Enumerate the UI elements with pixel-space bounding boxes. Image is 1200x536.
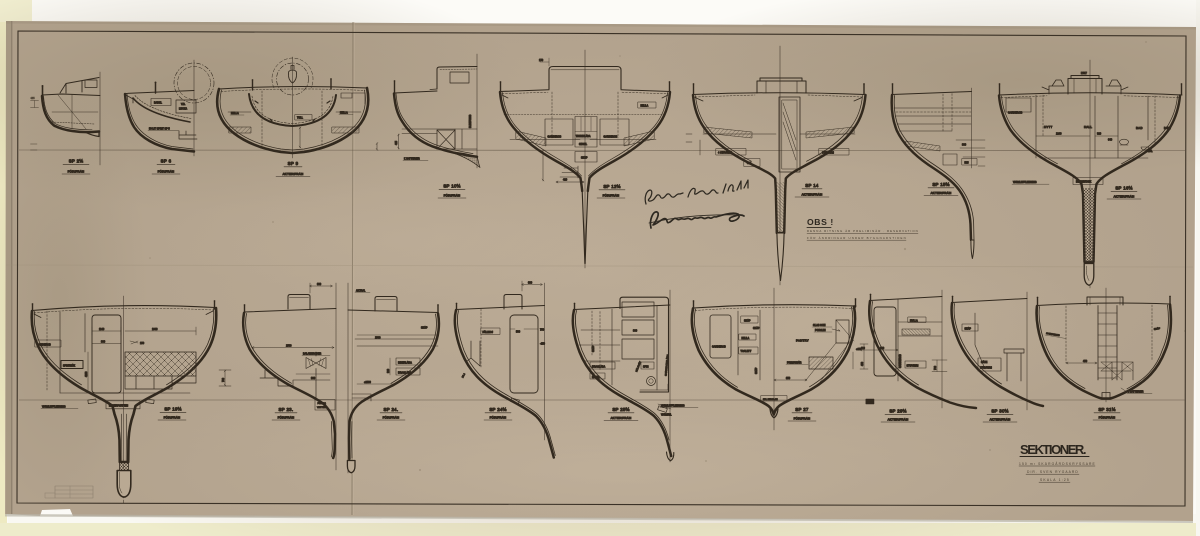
svg-text:1640: 1640 (152, 329, 158, 331)
svg-text:HELLA: HELLA (641, 105, 649, 108)
svg-text:310: 310 (1097, 134, 1102, 136)
svg-text:500: 500 (516, 332, 521, 334)
svg-text:SP 19½: SP 19½ (164, 407, 181, 412)
svg-text:SP 12½: SP 12½ (603, 184, 620, 189)
svg-text:STUVRUM: STUVRUM (980, 368, 992, 370)
svg-text:HALL: HALL (1084, 125, 1092, 129)
svg-text:1240: 1240 (1056, 134, 1062, 136)
svg-text:VARMLUFTLEDNING: VARMLUFTLEDNING (42, 406, 66, 409)
svg-text:SP 2½: SP 2½ (69, 159, 84, 164)
svg-text:890: 890 (880, 348, 885, 350)
svg-text:1500: 1500 (286, 345, 292, 347)
svg-text:SP 10½: SP 10½ (443, 184, 460, 189)
svg-text:BENSINTANK: BENSINTANK (1076, 181, 1092, 184)
svg-text:SP 9: SP 9 (288, 161, 299, 166)
svg-text:HELLA: HELLA (340, 112, 348, 115)
svg-text:HELLA: HELLA (231, 112, 239, 115)
svg-text:640: 640 (1108, 140, 1113, 142)
svg-text:FÖRIFRÅN: FÖRIFRÅN (490, 415, 507, 420)
svg-text:FÖRIFRÅN: FÖRIFRÅN (158, 169, 175, 174)
svg-text:SKÅP: SKÅP (592, 345, 595, 352)
svg-text:VARMRIL: VARMRIL (661, 414, 672, 417)
svg-text:410: 410 (563, 180, 568, 182)
svg-text:150: 150 (140, 343, 145, 345)
svg-text:OBS !: OBS ! (807, 217, 834, 227)
svg-text:AKTERIFRÅN: AKTERIFRÅN (990, 417, 1011, 422)
svg-text:FÖRRV.: FÖRRV. (318, 402, 327, 405)
svg-text:STUVRUM: STUVRUM (907, 365, 919, 367)
svg-text:SKÅP: SKÅP (744, 319, 751, 322)
svg-text:K BATTERIER: K BATTERIER (404, 158, 420, 161)
svg-text:BAL: BAL (1148, 150, 1153, 153)
svg-text:900: 900 (962, 145, 967, 147)
svg-text:STUVRUM: STUVRUM (822, 153, 834, 155)
svg-text:2 BATTERIER: 2 BATTERIER (1128, 391, 1144, 394)
svg-text:SP 29½: SP 29½ (889, 409, 906, 414)
svg-text:SP 14: SP 14 (805, 183, 819, 188)
svg-text:1140: 1140 (99, 329, 105, 331)
svg-text:SP 27: SP 27 (795, 407, 809, 412)
svg-text:SP 16½: SP 16½ (1115, 186, 1132, 191)
svg-text:FÖR ÄNDRINGAR UNDER BYGGNADSTI: FÖR ÄNDRINGAR UNDER BYGGNADSTIDEN (807, 236, 906, 240)
svg-text:FÖRIFRÅN: FÖRIFRÅN (444, 193, 461, 198)
svg-text:DRAGLÅDA: DRAGLÅDA (592, 365, 606, 368)
svg-text:450: 450 (862, 361, 864, 366)
svg-text:PORSLIN: PORSLIN (815, 330, 826, 332)
svg-text:VATTEN: VATTEN (317, 406, 326, 409)
svg-text:445: 445 (747, 163, 752, 165)
svg-text:FÖRIFRÅN: FÖRIFRÅN (164, 415, 181, 420)
svg-text:50 LIT SPRIT SP 5: 50 LIT SPRIT SP 5 (149, 129, 170, 131)
svg-text:FÄLLKOJ: FÄLLKOJ (483, 331, 494, 334)
svg-text:FÖRIFRÅN: FÖRIFRÅN (1099, 415, 1116, 420)
svg-text:VARMLUFTLEDNING: VARMLUFTLEDNING (661, 405, 685, 408)
svg-text:HELLA: HELLA (742, 337, 750, 340)
svg-text:SP 24½: SP 24½ (489, 407, 506, 412)
svg-text:900: 900 (311, 378, 316, 380)
svg-text:SP 30½: SP 30½ (991, 409, 1008, 414)
svg-text:SEKTIONER.: SEKTIONER. (1020, 442, 1087, 457)
svg-text:PRIMUSNÄR: PRIMUSNÄR (787, 362, 802, 365)
svg-text:TOALETT: TOALETT (741, 350, 752, 353)
svg-text:4200: 4200 (86, 371, 88, 377)
svg-text:SP 25½: SP 25½ (612, 407, 629, 412)
svg-text:SKALA 1:25: SKALA 1:25 (1040, 478, 1069, 482)
svg-text:AKTRAL: AKTRAL (356, 290, 366, 293)
svg-text:SPIS: SPIS (643, 366, 649, 368)
svg-text:AKTERIFRÅN: AKTERIFRÅN (283, 171, 304, 176)
svg-text:HYLLA: HYLLA (910, 320, 918, 323)
svg-text:150 m² SKÄRGÅRDSKRYSSARE: 150 m² SKÄRGÅRDSKRYSSARE (1019, 461, 1096, 466)
svg-text:HYTT: HYTT (1044, 125, 1053, 129)
svg-text:FÖRIFRÅN: FÖRIFRÅN (794, 416, 811, 421)
svg-text:AKTERIFRÅN: AKTERIFRÅN (931, 190, 952, 195)
svg-text:DIR. SVEN RYGAARD: DIR. SVEN RYGAARD (1027, 470, 1078, 474)
svg-text:AKTERIFRÅN: AKTERIFRÅN (1114, 194, 1135, 199)
svg-text:SP 24.: SP 24. (384, 407, 399, 412)
svg-text:INNERLÅDA: INNERLÅDA (398, 361, 412, 364)
svg-text:FÖRIFRÅN: FÖRIFRÅN (278, 415, 295, 420)
svg-text:BAD: BAD (1136, 126, 1143, 130)
svg-text:SKÅP: SKÅP (753, 327, 760, 330)
svg-text:595: 595 (965, 163, 970, 165)
svg-text:HAVEL: HAVEL (592, 376, 600, 379)
svg-text:210: 210 (388, 368, 390, 373)
svg-text:-150: -150 (540, 344, 546, 346)
svg-text:980: 980 (633, 331, 638, 333)
svg-text:BALANSRODER: BALANSRODER (303, 353, 322, 356)
svg-text:415: 415 (396, 140, 398, 145)
svg-text:+1000: +1000 (364, 382, 371, 384)
svg-text:IN.BETONG: IN.BETONG (470, 115, 472, 128)
svg-text:GARDEROB: GARDEROB (604, 136, 618, 139)
svg-text:SP 6: SP 6 (161, 159, 172, 164)
svg-text:V.B.: V.B. (181, 104, 186, 106)
svg-text:415: 415 (31, 98, 36, 100)
svg-text:SP 23.: SP 23. (279, 407, 294, 412)
svg-text:TRUNKLÅDA: TRUNKLÅDA (576, 135, 591, 138)
svg-text:900: 900 (101, 341, 106, 343)
svg-text:GARDEROB: GARDEROB (899, 354, 902, 368)
svg-text:BADR: BADR (1164, 127, 1171, 130)
svg-text:SÄTE: SÄTE (981, 361, 988, 364)
svg-text:AKTERIFRÅN: AKTERIFRÅN (802, 192, 823, 197)
svg-text:GLAS OCH: GLAS OCH (813, 324, 826, 327)
svg-text:450: 450 (1083, 361, 1088, 363)
svg-text:LYKT: LYKT (1081, 73, 1087, 75)
svg-text:4 STUVRUM: 4 STUVRUM (718, 153, 732, 155)
svg-text:SP 31½: SP 31½ (1098, 407, 1115, 412)
svg-text:SP 15½: SP 15½ (932, 182, 949, 187)
svg-text:SKÅP: SKÅP (965, 327, 972, 330)
svg-text:FÖRIFRÅN: FÖRIFRÅN (603, 193, 620, 198)
svg-text:600: 600 (528, 282, 533, 284)
svg-text:SPRITKÖK: SPRITKÖK (63, 364, 76, 367)
svg-text:600: 600 (317, 284, 322, 286)
svg-text:GARDEROB: GARDEROB (1008, 112, 1023, 115)
svg-text:170: 170 (539, 60, 544, 62)
svg-text:SKÅP: SKÅP (421, 327, 428, 330)
svg-text:VARMLUFTLEDNING: VARMLUFTLEDNING (1013, 181, 1037, 184)
svg-text:RESERVVATTEN: RESERVVATTEN (109, 405, 128, 408)
svg-text:700: 700 (223, 377, 225, 382)
svg-text:AKTERIFRÅN: AKTERIFRÅN (611, 415, 632, 420)
svg-text:FÖRIFRÅN: FÖRIFRÅN (383, 415, 400, 420)
svg-text:FÖRIFRÅN: FÖRIFRÅN (68, 169, 85, 174)
svg-text:PANTRY: PANTRY (796, 339, 809, 343)
svg-text:DENNA RITNING ÄR PRELIMINÄR .: DENNA RITNING ÄR PRELIMINÄR . RESERVATIO… (807, 229, 918, 233)
svg-text:750: 750 (540, 330, 545, 332)
svg-text:KYL BERGLAN: KYL BERGLAN (763, 398, 778, 401)
svg-text:AKTERIFRÅN: AKTERIFRÅN (888, 417, 909, 422)
svg-text:110: 110 (861, 348, 866, 350)
svg-text:TULL: TULL (297, 118, 304, 120)
svg-text:GARDEROB: GARDEROB (712, 346, 726, 349)
svg-text:SKÅP: SKÅP (581, 157, 588, 160)
svg-text:850: 850 (786, 378, 791, 380)
svg-text:SKÅP: SKÅP (755, 367, 758, 374)
svg-text:LUCKA: LUCKA (179, 108, 187, 111)
svg-text:1540: 1540 (375, 337, 381, 339)
svg-text:DRAGLÅDA: DRAGLÅDA (398, 371, 412, 374)
svg-text:GARDEROB: GARDEROB (37, 343, 51, 346)
svg-text:SEGEL: SEGEL (579, 144, 588, 146)
svg-text:GARDEROB: GARDEROB (548, 136, 562, 139)
svg-text:760: 760 (935, 365, 937, 370)
svg-text:BADKL: BADKL (154, 102, 163, 105)
